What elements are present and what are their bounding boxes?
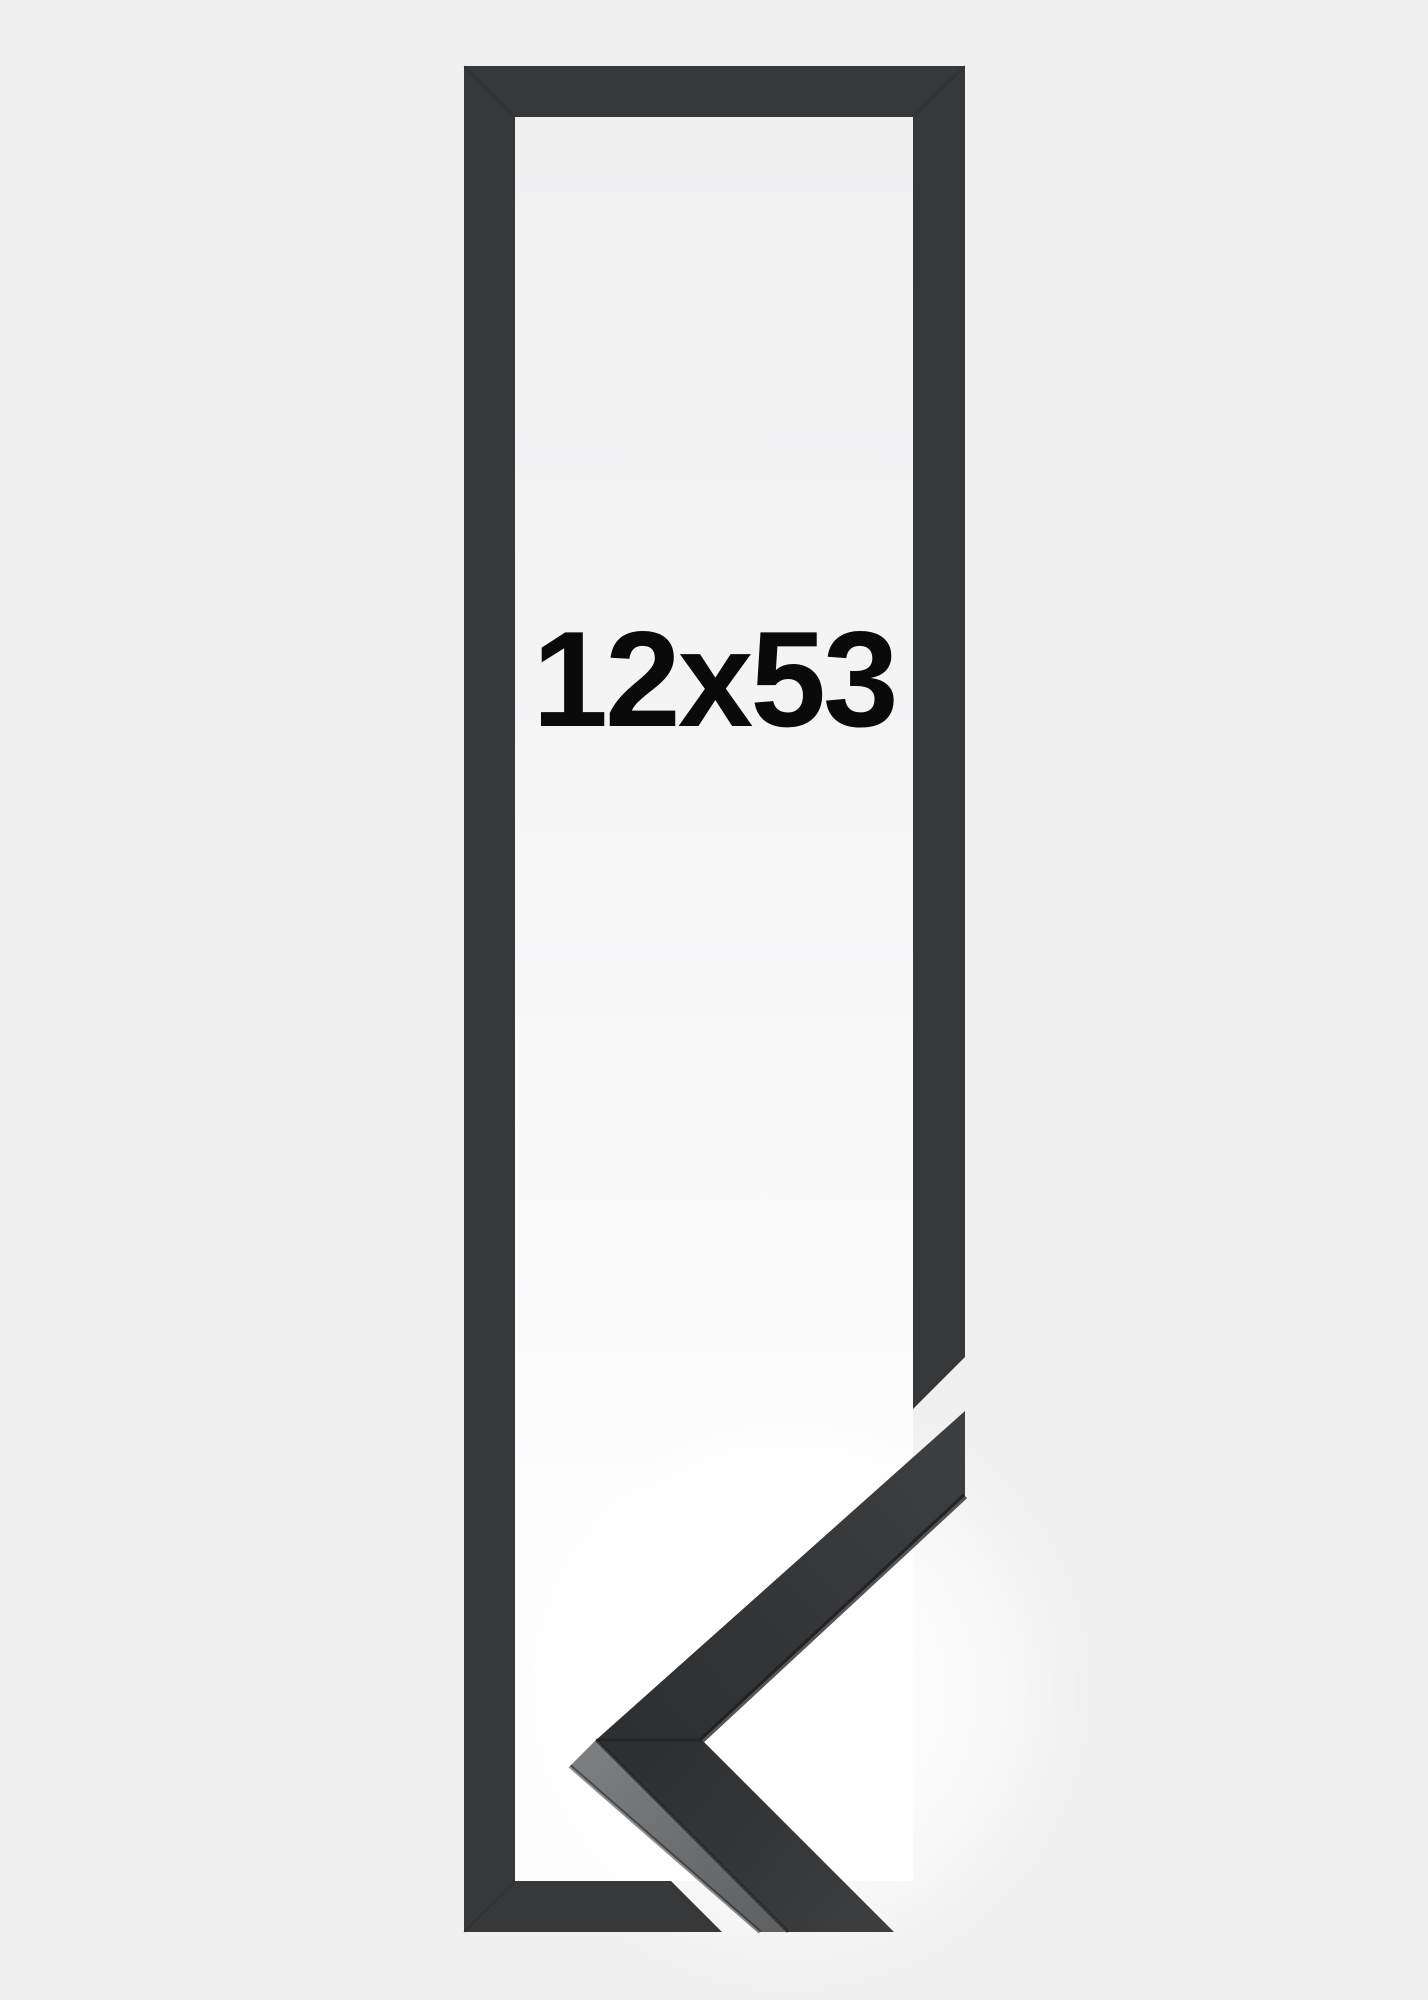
product-image: 12x53 <box>0 0 1428 2000</box>
size-label: 12x53 <box>532 603 895 755</box>
frame-top-bar <box>464 66 965 117</box>
frame-right-bar <box>913 66 965 1409</box>
frame-left-bar <box>464 66 515 1932</box>
frame-size-graphic: 12x53 <box>0 0 1428 2000</box>
